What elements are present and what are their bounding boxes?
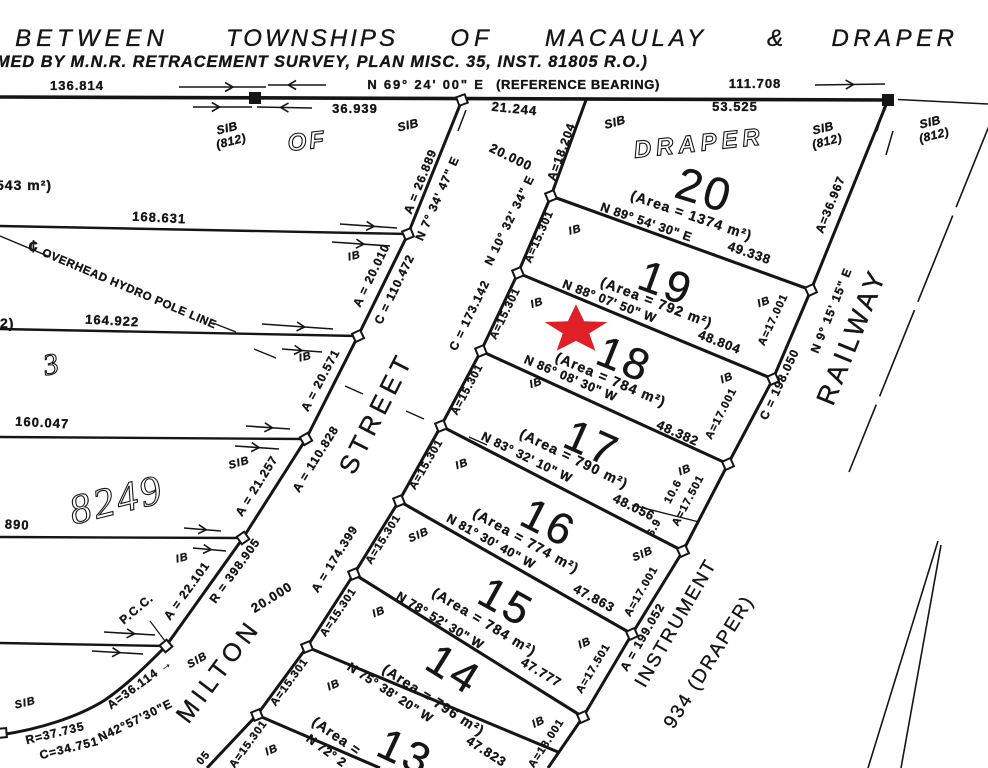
svg-text:MACAULAY: MACAULAY	[545, 25, 707, 52]
svg-text:164.922: 164.922	[85, 312, 140, 330]
svg-text:DRAPER: DRAPER	[831, 25, 958, 52]
svg-text:MED BY M.N.R. RETRACEMENT SURV: MED BY M.N.R. RETRACEMENT SURVEY, PLAN M…	[0, 53, 648, 71]
svg-text:543 m²): 543 m²)	[0, 177, 52, 193]
svg-text:2): 2)	[0, 315, 14, 331]
svg-text:136.814: 136.814	[50, 78, 104, 93]
svg-text:53.525: 53.525	[712, 99, 758, 114]
svg-text:168.631: 168.631	[132, 209, 187, 227]
svg-text:160.047: 160.047	[15, 414, 70, 432]
svg-text:OF: OF	[286, 126, 328, 157]
svg-text:111.708: 111.708	[729, 76, 782, 91]
svg-text:(REFERENCE BEARING): (REFERENCE BEARING)	[496, 77, 660, 92]
svg-text:OF: OF	[450, 25, 493, 52]
svg-text:TOWNSHIPS: TOWNSHIPS	[226, 25, 398, 52]
svg-text:&: &	[767, 25, 787, 52]
svg-text:36.939: 36.939	[332, 101, 378, 116]
svg-text:BETWEEN: BETWEEN	[15, 25, 169, 52]
svg-text:N 69° 24' 00" E: N 69° 24' 00" E	[367, 77, 484, 92]
svg-text:890: 890	[5, 516, 30, 532]
